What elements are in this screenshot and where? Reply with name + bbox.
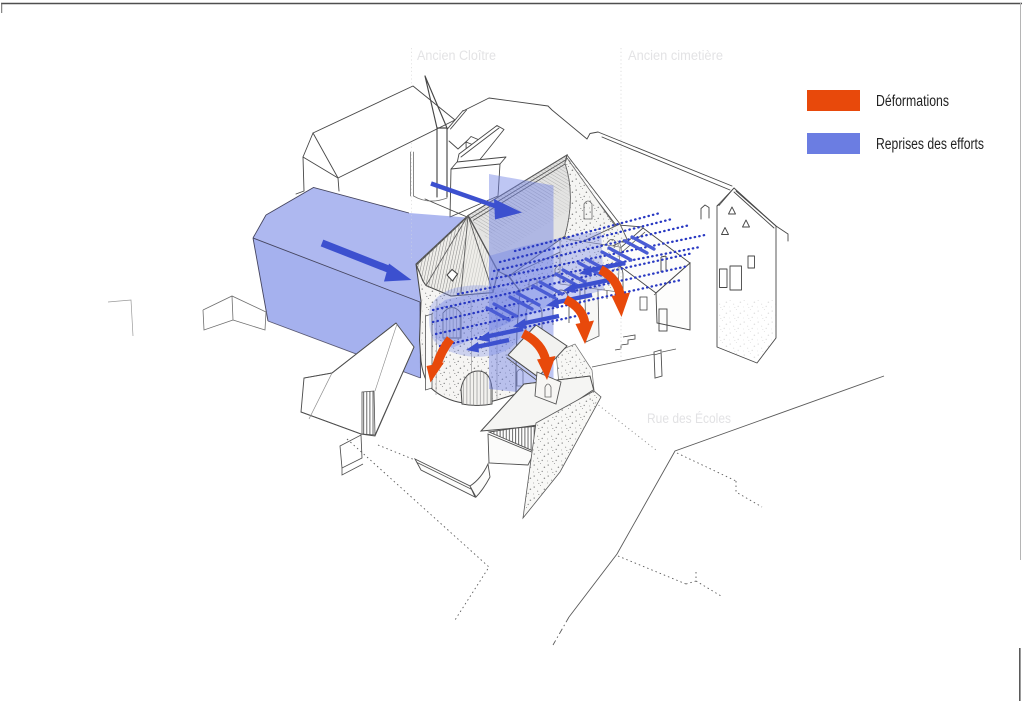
- svg-text:Rue des Écoles: Rue des Écoles: [647, 411, 731, 426]
- svg-text:Ancien Cloître: Ancien Cloître: [417, 48, 496, 63]
- svg-text:Déformations: Déformations: [876, 93, 949, 110]
- svg-text:Reprises des efforts: Reprises des efforts: [876, 136, 984, 153]
- svg-text:Ancien cimetière: Ancien cimetière: [628, 48, 723, 63]
